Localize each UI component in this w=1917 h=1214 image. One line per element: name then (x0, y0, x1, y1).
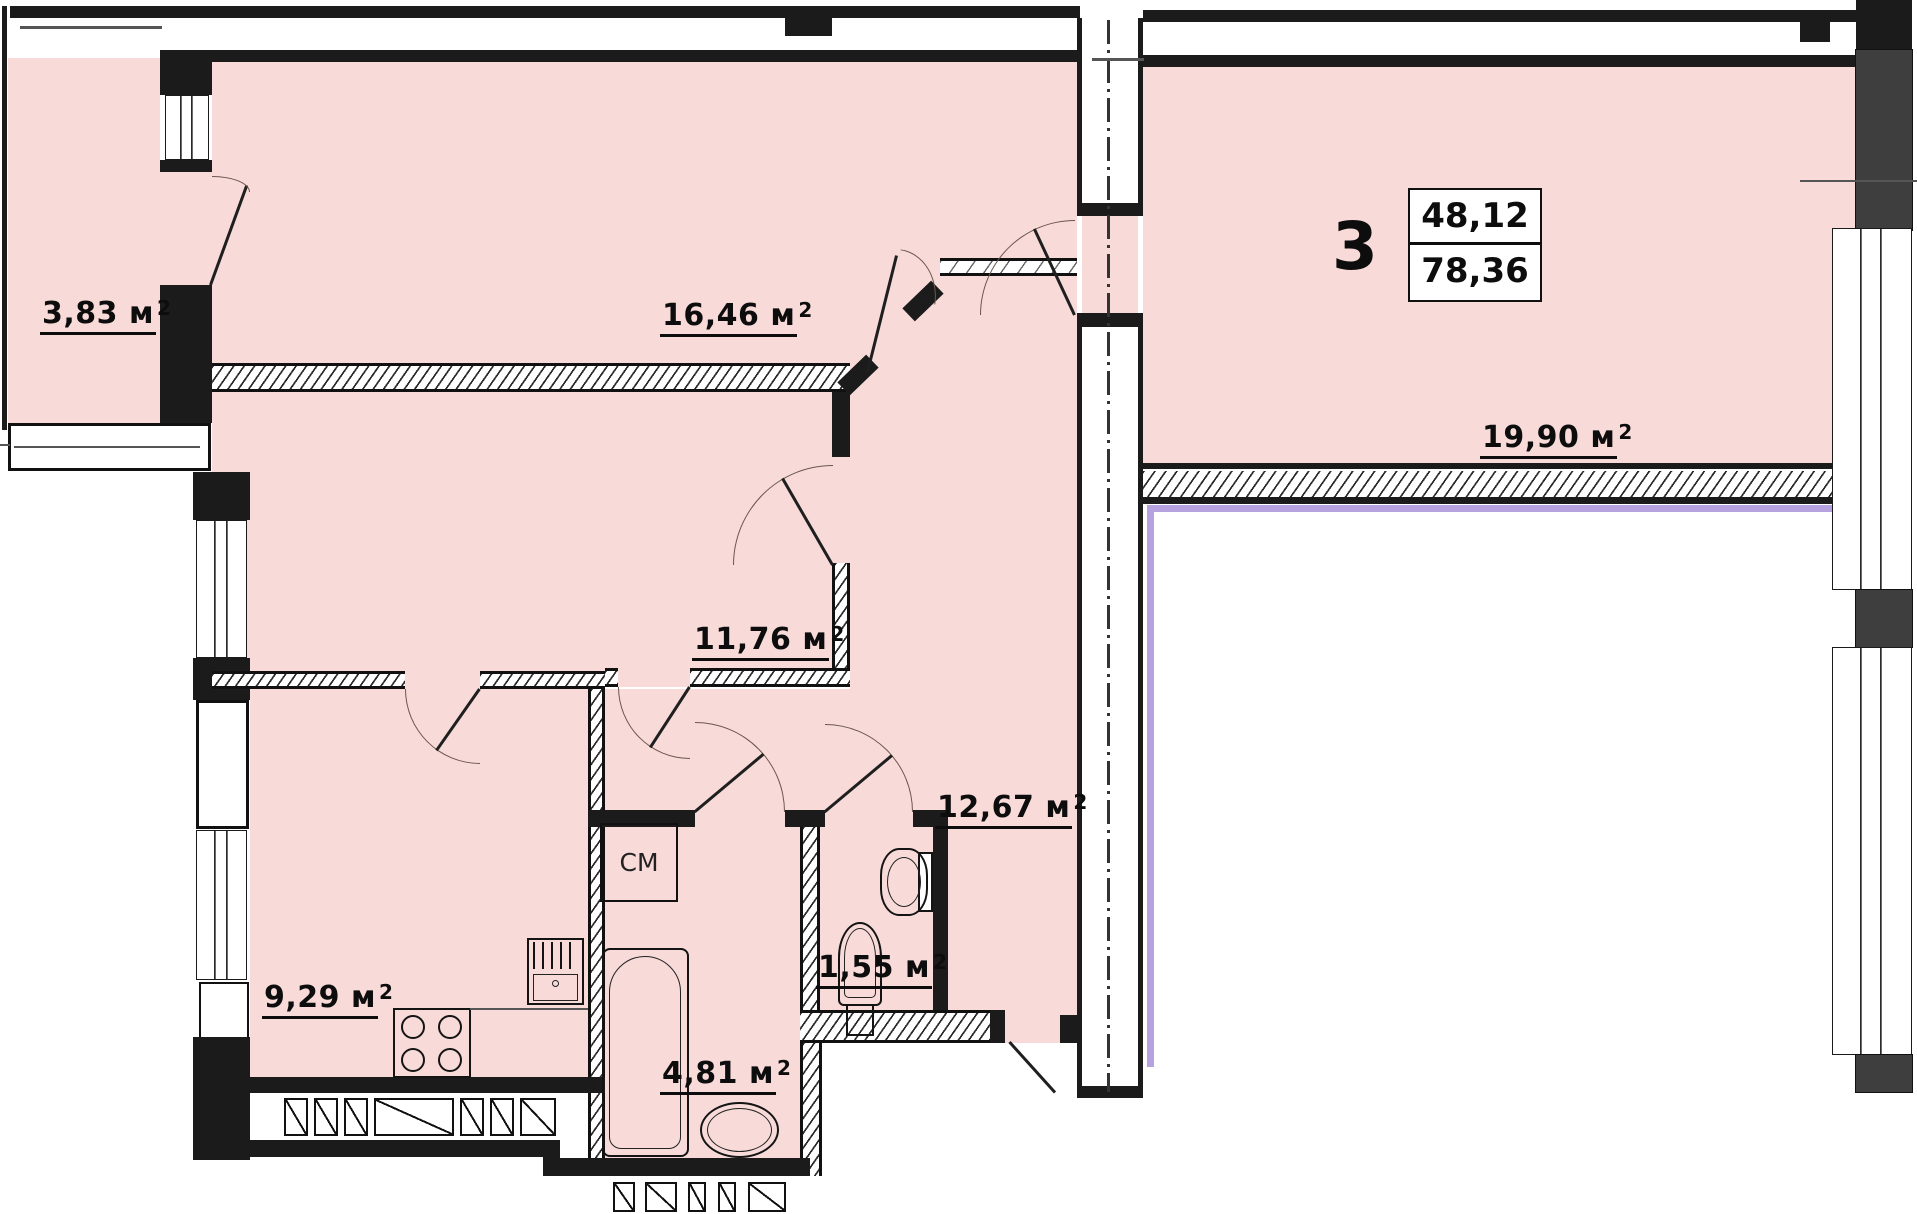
room-right-area-label: 19,90 м2 (1480, 420, 1633, 455)
wall-hatched (1143, 471, 1868, 497)
room-right-area-value: 19,90 (1482, 420, 1579, 455)
floor-plan: СМ 3,83 м2 16,46 м2 11,76 м2 9,29 м2 12,… (0, 0, 1917, 1214)
vent-block (520, 1098, 556, 1136)
washing-machine-box: СМ (600, 823, 678, 902)
wall-pier (1856, 50, 1912, 230)
area-sup: 2 (379, 980, 393, 1004)
window (1832, 228, 1912, 590)
door-gap (160, 172, 212, 285)
bathtub-inner (609, 956, 681, 1149)
wall (193, 1140, 557, 1157)
wall (250, 1077, 605, 1093)
wall-pier (1856, 1055, 1912, 1092)
door-gap (1082, 216, 1138, 313)
stove-burner-icon (401, 1015, 425, 1039)
stove-burner-icon (438, 1015, 462, 1039)
hallway-area-value: 12,67 (937, 790, 1034, 825)
living-room-area-label: 16,46 м2 (660, 298, 813, 333)
vent-block (374, 1098, 454, 1136)
apartment-area-badge: 48,12 78,36 (1408, 188, 1542, 302)
window (196, 830, 247, 980)
area-unit: м (905, 950, 930, 985)
toilet-bowl-inner (887, 857, 921, 907)
balcony-sill-line (14, 446, 200, 448)
kitchen-area-label: 9,29 м2 (262, 980, 393, 1015)
wall (1143, 10, 1856, 22)
vent-block (613, 1182, 635, 1212)
door-gap (405, 671, 480, 689)
entrance-door-leaf (1008, 1041, 1056, 1094)
wall (543, 1158, 810, 1176)
wall (1077, 327, 1082, 1086)
hallway-area-label: 12,67 м2 (935, 790, 1088, 825)
window-bay (196, 700, 249, 829)
washing-machine-label: СМ (619, 848, 658, 877)
bathroom-sink-inner (707, 1108, 772, 1152)
area-unit: м (770, 298, 795, 333)
area-sup: 2 (777, 1056, 791, 1080)
balcony-area-label: 3,83 м2 (40, 296, 171, 331)
area-unit: м (1590, 420, 1615, 455)
stove-burner-icon (438, 1048, 462, 1072)
wall-hatched (800, 1010, 990, 1043)
area-sup: 2 (933, 950, 947, 974)
door-gap (825, 810, 913, 827)
wall-centerline (1107, 20, 1110, 1092)
neighbor-unit-area (1147, 505, 1852, 1067)
wall (1077, 1086, 1143, 1098)
kitchen-area-value: 9,29 (264, 980, 340, 1015)
wall (1143, 55, 1868, 67)
wall (832, 392, 850, 457)
area-sup: 2 (1618, 420, 1632, 444)
window (196, 520, 247, 658)
wall (1077, 313, 1143, 327)
wc-sink-pedestal (846, 1004, 874, 1036)
vent-block (688, 1182, 706, 1212)
wall (1856, 0, 1912, 50)
apartment-total-area: 78,36 (1410, 245, 1540, 297)
vent-block (718, 1182, 736, 1212)
area-unit: м (749, 1056, 774, 1091)
vent-block (645, 1182, 677, 1212)
wall-hatched (800, 1043, 822, 1176)
bedroom-area-label: 11,76 м2 (692, 622, 845, 657)
vent-block (748, 1182, 786, 1212)
door-gap (618, 668, 690, 687)
wall (160, 50, 1080, 62)
apartment-living-area: 48,12 (1410, 190, 1540, 245)
area-sup: 2 (798, 298, 812, 322)
area-sup: 2 (157, 296, 171, 320)
sink-drainer-icon (533, 942, 578, 969)
living-room-area-value: 16,46 (662, 298, 759, 333)
wall (1077, 203, 1143, 216)
window (165, 95, 209, 160)
vent-block (344, 1098, 368, 1136)
stove-burner-icon (401, 1048, 425, 1072)
bathroom-area-label: 4,81 м2 (660, 1056, 791, 1091)
wc-area-label: 1,55 м2 (816, 950, 947, 985)
window (1832, 647, 1912, 1055)
wall (160, 58, 212, 95)
tick-mark (1092, 58, 1144, 61)
tick-mark (1800, 180, 1917, 182)
wall (1143, 497, 1868, 504)
wall (10, 6, 1080, 18)
area-unit: м (129, 296, 154, 331)
area-sup: 2 (830, 622, 844, 646)
bedroom-area-value: 11,76 (694, 622, 791, 657)
wall (193, 472, 250, 520)
wall (1143, 463, 1868, 469)
door-gap (832, 457, 850, 565)
wall (785, 810, 825, 827)
wall-hatched (212, 363, 850, 392)
tick-mark (0, 444, 10, 446)
wall (2, 6, 7, 430)
area-unit: м (802, 622, 827, 657)
vent-block (314, 1098, 338, 1136)
wall (1138, 327, 1143, 1086)
vent-block (460, 1098, 484, 1136)
counter-line (470, 1008, 588, 1010)
shaft-wall (1077, 18, 1143, 1098)
balcony-floor (8, 58, 160, 423)
wall-hatched (605, 668, 618, 687)
apartment-number: 3 (1332, 208, 1378, 285)
sink-bowl (533, 974, 578, 1001)
wall (990, 1010, 1005, 1043)
balcony-glazing-line (20, 26, 162, 29)
wall-hatched (212, 671, 405, 689)
balcony-area-value: 3,83 (42, 296, 118, 331)
wall (1077, 18, 1082, 203)
bathroom-area-value: 4,81 (662, 1056, 738, 1091)
wall (1800, 10, 1830, 42)
area-sup: 2 (1073, 790, 1087, 814)
door-gap (695, 810, 785, 827)
vent-block (284, 1098, 308, 1136)
wall (160, 160, 212, 172)
wall-hatched (690, 668, 850, 687)
wall (1138, 18, 1143, 203)
wall (785, 18, 832, 36)
sink-drain-dot (552, 980, 559, 987)
area-unit: м (351, 980, 376, 1015)
wc-area-value: 1,55 (818, 950, 894, 985)
wall-pier (1856, 590, 1912, 647)
area-unit: м (1045, 790, 1070, 825)
window-sill-box (199, 982, 249, 1039)
vent-block (490, 1098, 514, 1136)
wall-hatched (480, 671, 605, 689)
